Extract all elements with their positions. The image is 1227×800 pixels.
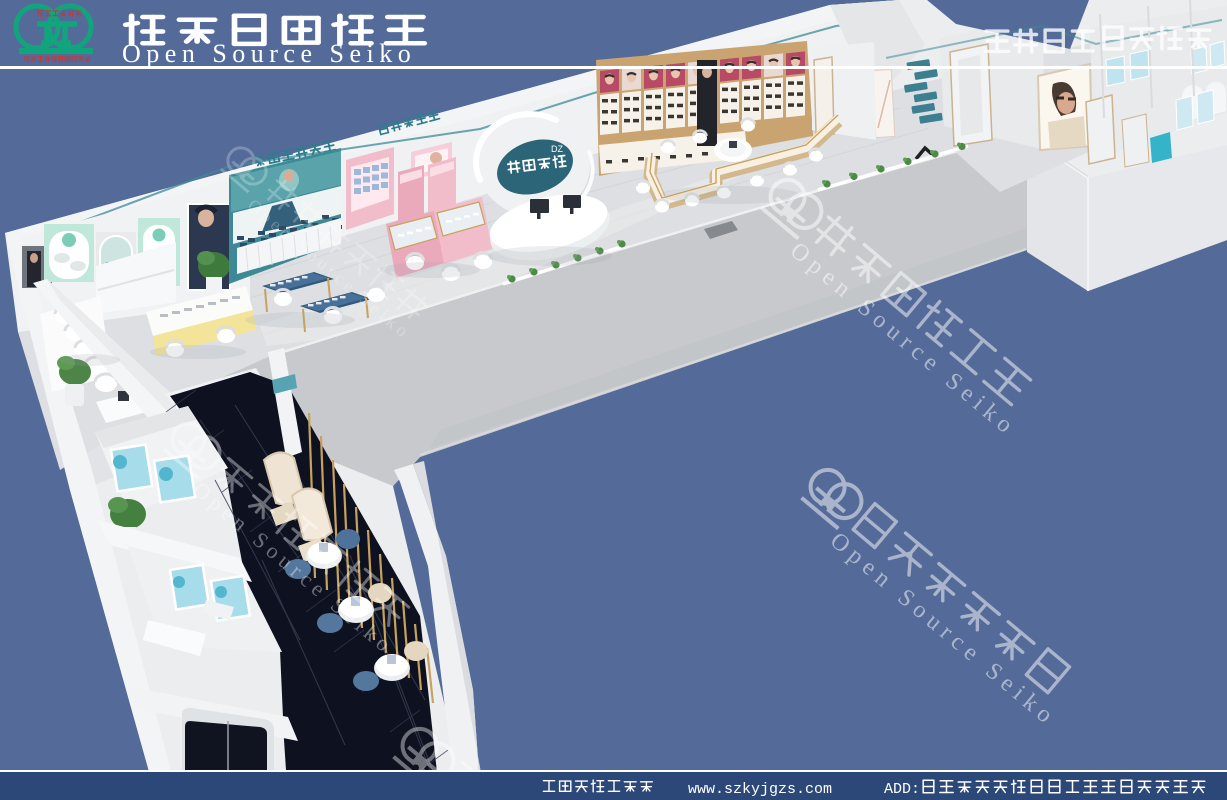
svg-text:Open Source Seiko: Open Source Seiko (122, 39, 416, 68)
svg-text:DZ: DZ (551, 144, 563, 154)
svg-text:www.szkyjgzs.com: www.szkyjgzs.com (688, 781, 832, 798)
svg-text:ADD:: ADD: (884, 781, 920, 798)
